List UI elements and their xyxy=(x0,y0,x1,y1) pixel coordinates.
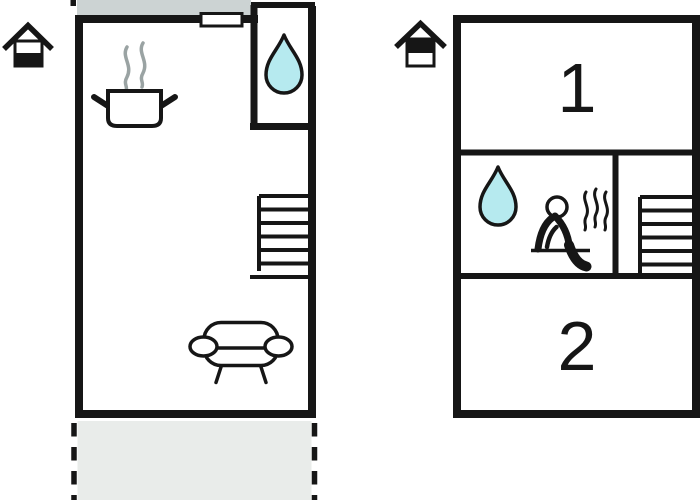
steam-line xyxy=(595,189,598,227)
house-level-icon-first xyxy=(396,24,445,67)
terrace-fill xyxy=(78,421,312,500)
floorplan-first-floor: 1 2 xyxy=(457,19,696,414)
stairs-icon xyxy=(250,196,316,277)
sauna-person-icon xyxy=(531,189,607,267)
steam-line xyxy=(605,192,608,230)
steam-icon xyxy=(585,189,608,230)
pot-handle-right xyxy=(161,97,175,106)
steam-line xyxy=(125,47,128,91)
floor-plan-page: 1 2 xyxy=(0,0,700,500)
water-drop-shape xyxy=(266,35,302,93)
steam-line xyxy=(141,43,144,87)
pot-handle-left xyxy=(94,97,108,106)
stairs-treads xyxy=(259,196,311,264)
boundary-dash xyxy=(71,0,77,6)
house-lower-level-highlight xyxy=(15,53,42,66)
pot-body xyxy=(108,91,161,126)
water-drop-icon xyxy=(266,35,302,93)
floorplan-ground-floor xyxy=(71,0,317,500)
water-drop-shape xyxy=(480,167,516,225)
sofa-icon xyxy=(190,323,292,383)
sauna-person-leg xyxy=(569,245,587,267)
stairs-icon xyxy=(640,197,694,273)
sofa-armrest-right xyxy=(265,337,292,356)
water-drop-icon xyxy=(480,167,516,225)
house-upper-level-highlight xyxy=(407,39,434,53)
door-icon xyxy=(201,14,242,27)
sauna-person-arm xyxy=(547,227,557,247)
sofa-armrest-left xyxy=(190,337,217,356)
house-level-icon-ground xyxy=(4,26,52,67)
room-2-label: 2 xyxy=(558,307,597,385)
sofa-legs xyxy=(216,366,266,383)
cooking-pot-icon xyxy=(94,43,175,126)
steam-line xyxy=(585,192,588,230)
stairs-treads xyxy=(640,197,694,265)
room-1-label: 1 xyxy=(558,49,597,127)
floor-plan-drawing: 1 2 xyxy=(0,0,700,500)
terrace-area xyxy=(74,421,315,500)
